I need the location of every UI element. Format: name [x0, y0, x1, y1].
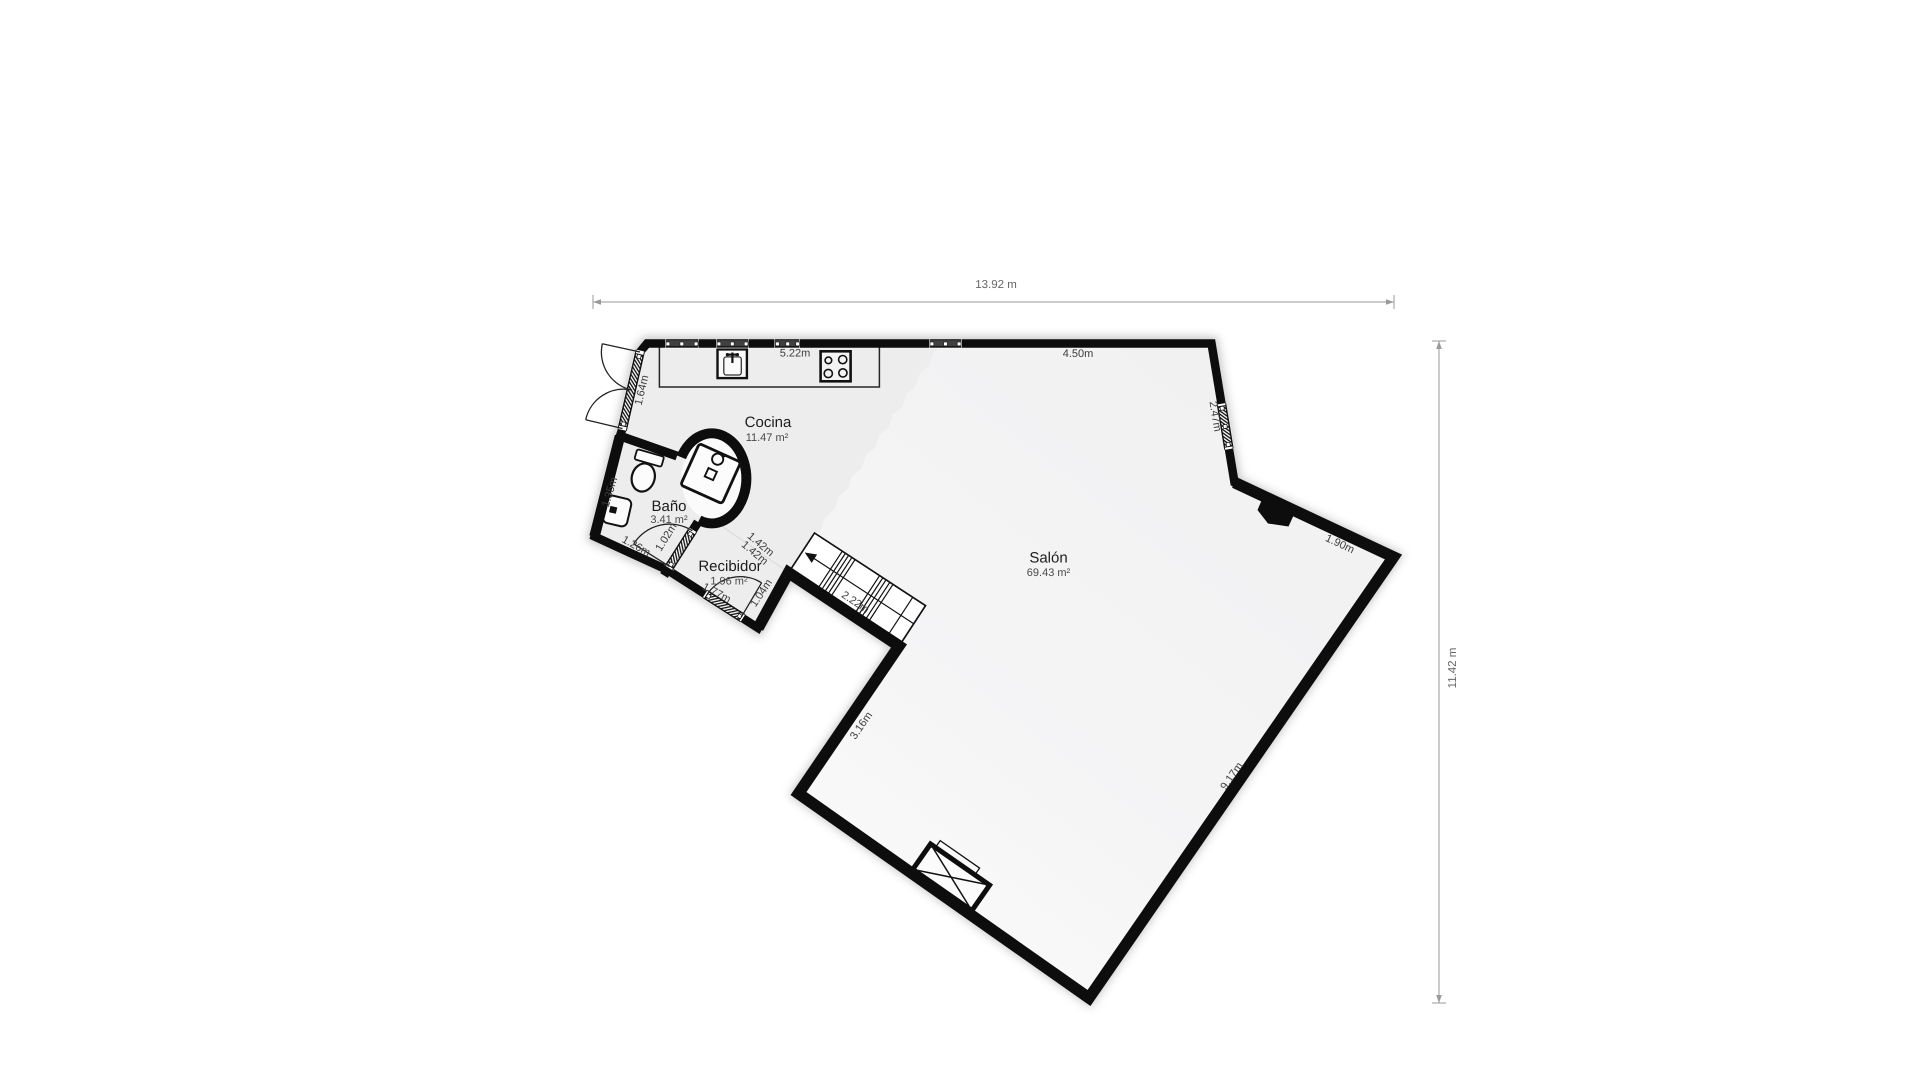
- svg-text:Baño: Baño: [651, 498, 686, 515]
- svg-text:Cocina: Cocina: [745, 414, 792, 431]
- svg-text:5.22m: 5.22m: [780, 348, 811, 360]
- svg-text:11.42 m: 11.42 m: [1447, 648, 1459, 689]
- svg-text:13.92 m: 13.92 m: [975, 279, 1017, 291]
- svg-text:4.50m: 4.50m: [1063, 348, 1094, 360]
- svg-text:69.43 m²: 69.43 m²: [1027, 567, 1071, 579]
- svg-text:Salón: Salón: [1029, 550, 1067, 567]
- svg-text:Recibidor: Recibidor: [698, 558, 761, 575]
- svg-text:11.47 m²: 11.47 m²: [746, 432, 789, 444]
